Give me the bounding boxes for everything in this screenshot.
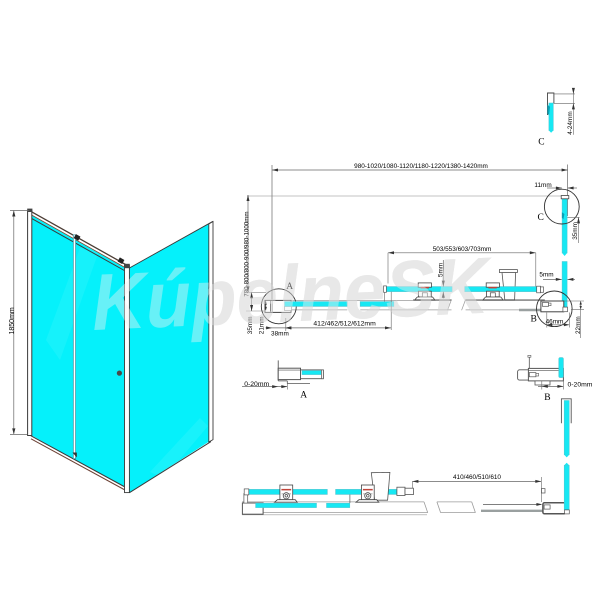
- svg-text:C: C: [538, 213, 544, 223]
- svg-text:0-20mm: 0-20mm: [244, 381, 269, 388]
- svg-text:C: C: [538, 138, 544, 148]
- svg-text:A: A: [300, 390, 307, 400]
- svg-text:B: B: [531, 315, 537, 325]
- svg-text:410/460/510/610: 410/460/510/610: [453, 474, 501, 481]
- svg-text:35mm: 35mm: [572, 222, 579, 240]
- svg-text:5mm: 5mm: [539, 272, 553, 279]
- svg-text:KúpelneSK: KúpelneSK: [90, 241, 495, 347]
- svg-text:4-24mm: 4-24mm: [567, 111, 574, 134]
- svg-text:46mm: 46mm: [546, 319, 564, 326]
- svg-text:B: B: [544, 393, 550, 403]
- svg-text:0-20mm: 0-20mm: [568, 381, 593, 388]
- svg-text:1850mm: 1850mm: [9, 307, 16, 334]
- svg-text:22mm: 22mm: [575, 316, 582, 334]
- svg-text:980-1020/1080-1120/1180-1220/1: 980-1020/1080-1120/1180-1220/1380-1420mm: [354, 163, 488, 170]
